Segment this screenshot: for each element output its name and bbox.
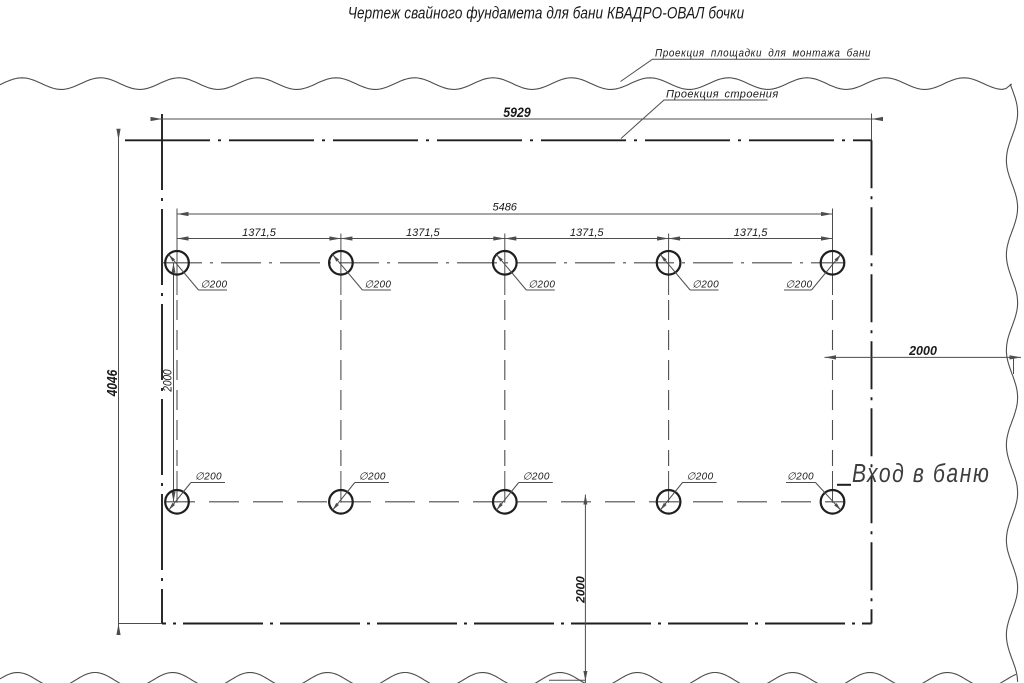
svg-text:∅200: ∅200 [364, 280, 391, 291]
svg-text:2000: 2000 [573, 576, 587, 604]
svg-text:∅200: ∅200 [523, 472, 550, 483]
svg-text:5486: 5486 [492, 202, 517, 214]
svg-text:2000: 2000 [908, 344, 937, 358]
svg-text:∅200: ∅200 [528, 280, 555, 291]
svg-text:∅200: ∅200 [692, 280, 719, 291]
svg-text:∅200: ∅200 [359, 472, 386, 483]
svg-text:1371,5: 1371,5 [734, 227, 769, 239]
svg-text:1371,5: 1371,5 [242, 227, 277, 239]
svg-text:Чертеж свайного фундамета для: Чертеж свайного фундамета для бани КВАДР… [348, 4, 745, 23]
svg-text:Вход в баню: Вход в баню [852, 460, 990, 489]
svg-text:∅200: ∅200 [787, 472, 814, 483]
svg-text:2000: 2000 [162, 369, 175, 393]
svg-text:Проекция строения: Проекция строения [666, 89, 779, 101]
svg-text:5929: 5929 [503, 104, 531, 120]
svg-text:∅200: ∅200 [786, 280, 813, 291]
svg-text:Проекция площадки для монтажа: Проекция площадки для монтажа бани [655, 47, 871, 60]
svg-text:∅200: ∅200 [201, 280, 228, 291]
svg-text:∅200: ∅200 [687, 472, 714, 483]
svg-text:1371,5: 1371,5 [570, 227, 605, 239]
svg-text:∅200: ∅200 [195, 472, 222, 483]
svg-text:4046: 4046 [104, 369, 120, 397]
svg-text:1371,5: 1371,5 [406, 227, 441, 239]
